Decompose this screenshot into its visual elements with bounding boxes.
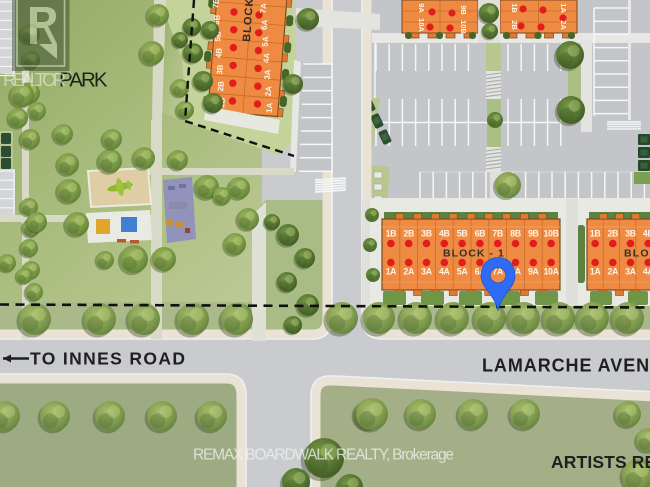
svg-text:4A: 4A — [262, 52, 272, 63]
svg-text:10B: 10B — [459, 20, 468, 34]
svg-text:6A: 6A — [260, 19, 270, 30]
svg-text:3B: 3B — [421, 229, 432, 239]
svg-text:1B: 1B — [590, 229, 601, 239]
svg-text:1A: 1A — [559, 3, 568, 13]
svg-text:9B: 9B — [459, 5, 468, 15]
svg-text:2A: 2A — [607, 267, 619, 277]
svg-text:1B: 1B — [386, 229, 397, 239]
svg-text:2A: 2A — [559, 20, 568, 30]
svg-text:REALTOR: REALTOR — [3, 69, 66, 90]
svg-text:3A: 3A — [421, 267, 433, 277]
svg-text:9A: 9A — [528, 267, 540, 277]
svg-text:4B: 4B — [214, 47, 224, 58]
svg-text:2B: 2B — [216, 81, 226, 92]
svg-text:®: ® — [67, 70, 73, 78]
svg-text:7A: 7A — [259, 3, 269, 14]
svg-text:5A: 5A — [457, 267, 469, 277]
svg-text:6B: 6B — [475, 229, 486, 239]
svg-text:8B: 8B — [510, 229, 521, 239]
svg-text:2B: 2B — [607, 229, 618, 239]
svg-text:3B: 3B — [625, 229, 636, 239]
svg-text:2A: 2A — [264, 86, 274, 97]
svg-text:1A: 1A — [386, 267, 398, 277]
svg-text:4B: 4B — [643, 229, 650, 239]
svg-text:1A: 1A — [265, 102, 275, 113]
svg-text:3A: 3A — [263, 69, 273, 80]
svg-text:1A: 1A — [590, 267, 602, 277]
svg-text:2B: 2B — [510, 20, 519, 30]
svg-text:5A: 5A — [261, 36, 271, 47]
svg-text:2A: 2A — [403, 267, 415, 277]
svg-text:10A: 10A — [543, 267, 559, 277]
svg-text:10A: 10A — [417, 18, 426, 32]
svg-text:4A: 4A — [439, 267, 451, 277]
svg-text:4A: 4A — [643, 267, 650, 277]
svg-text:4B: 4B — [439, 229, 450, 239]
svg-text:LAMARCHE AVENUE: LAMARCHE AVENUE — [482, 356, 650, 376]
svg-text:7B: 7B — [211, 0, 221, 9]
svg-text:BLOCK - 2: BLOCK - 2 — [624, 248, 650, 260]
svg-text:3A: 3A — [625, 267, 637, 277]
svg-text:10B: 10B — [543, 229, 558, 239]
svg-text:7B: 7B — [492, 229, 503, 239]
svg-text:5B: 5B — [457, 229, 468, 239]
svg-text:9A: 9A — [417, 3, 426, 13]
svg-text:1B: 1B — [510, 3, 519, 13]
svg-text:TO INNES ROAD: TO INNES ROAD — [30, 349, 187, 369]
svg-text:2B: 2B — [403, 229, 414, 239]
svg-text:REMAX BOARDWALK REALTY, Broker: REMAX BOARDWALK REALTY, Brokerage — [193, 447, 454, 464]
svg-text:ARTISTS RESI: ARTISTS RESI — [551, 452, 650, 472]
svg-text:3B: 3B — [215, 64, 225, 75]
svg-text:9B: 9B — [528, 229, 539, 239]
